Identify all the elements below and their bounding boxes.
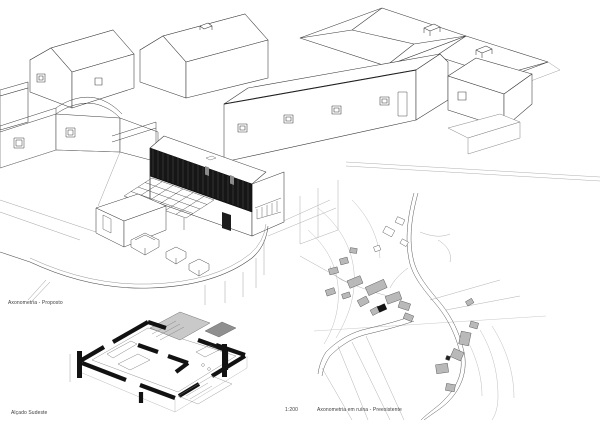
- site-plan: [308, 193, 546, 420]
- leader-lines: [28, 280, 50, 301]
- field-boundaries: [322, 232, 520, 420]
- label-alcado-sudeste: Alçado Sudeste: [11, 411, 47, 417]
- cutaway-axonometric: [70, 312, 247, 412]
- label-axon-proposto: Axonometria - Proposto: [8, 301, 63, 307]
- planter-boxes: [131, 233, 209, 276]
- drawing-canvas: [0, 0, 600, 425]
- label-axon-preexistente: Axonometria em ruína - Preexistente: [317, 408, 402, 414]
- ground-link-lines: [268, 162, 600, 284]
- label-scale: 1:200: [285, 408, 298, 414]
- site-buildings: [325, 217, 478, 392]
- roads: [318, 193, 465, 420]
- reference-line: [314, 316, 546, 331]
- presentation-sheet: Axonometria - Proposto Alçado Sudeste 1:…: [0, 0, 600, 425]
